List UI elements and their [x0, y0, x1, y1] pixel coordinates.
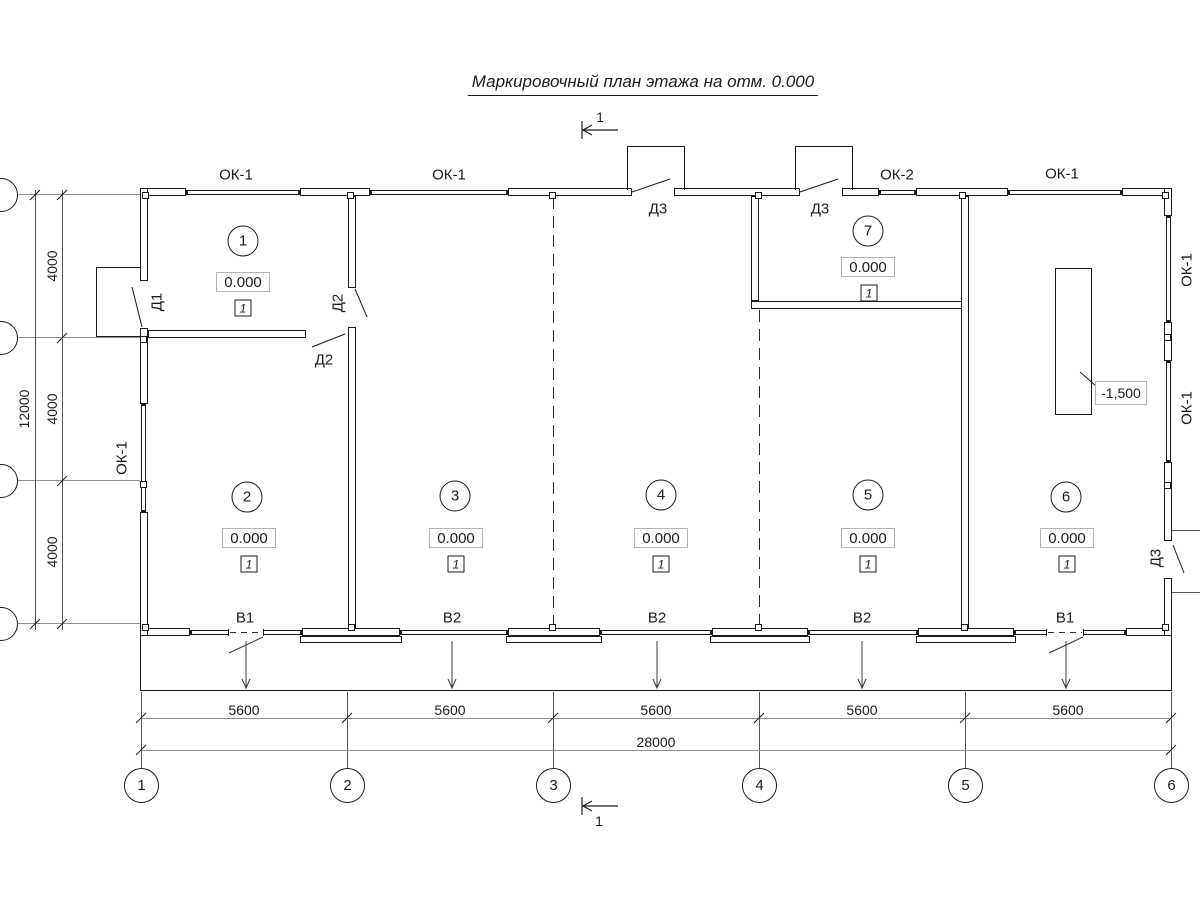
door-label-d3: Д3: [649, 201, 668, 218]
door-leaf-d3-porch2: [800, 179, 838, 192]
col-axis-number: 1: [137, 777, 145, 794]
room-4-number: 4: [646, 480, 677, 511]
door-leaf-lines: [132, 179, 1184, 573]
window-label-ok1: ОК-1: [432, 167, 466, 184]
door-label-d3: Д3: [1148, 549, 1165, 568]
room-6-number: 6: [1051, 482, 1082, 513]
vent-label-v1: В1: [236, 610, 254, 627]
window-label-ok1: ОК-1: [1179, 391, 1196, 425]
room-7-number: 7: [853, 216, 884, 247]
col-axis-bubble-4: 4: [742, 768, 777, 803]
room-5-finish: 1: [860, 556, 877, 573]
door-label-d2: Д2: [315, 352, 334, 369]
section-marks: [582, 121, 618, 815]
window-label-ok2: ОК-2: [880, 167, 914, 184]
floor-plan-drawing: Маркировочный план этажа на отм. 0.000 4…: [0, 0, 1200, 900]
pit-elevation: -1,500: [1095, 381, 1147, 405]
dim-bay-1: 5600: [228, 702, 259, 718]
vent-label-v2: В2: [443, 610, 461, 627]
col-axis-bubble-3: 3: [536, 768, 571, 803]
door-label-d2: Д2: [330, 294, 347, 313]
room-1-elevation: 0.000: [216, 272, 270, 292]
pit-elevation-value: -1,500: [1101, 385, 1141, 401]
dim-bay-4: 5600: [846, 702, 877, 718]
room-4-finish: 1: [653, 556, 670, 573]
dim-total-width: 28000: [637, 734, 676, 750]
dim-row-1: 4000: [44, 250, 60, 281]
dim-bay-3: 5600: [640, 702, 671, 718]
room-3-finish: 1: [448, 556, 465, 573]
pit-leader-line: [1080, 372, 1096, 386]
col-axis-bubble-6: 6: [1154, 768, 1189, 803]
room-2-number: 2: [232, 482, 263, 513]
door-leaf-d2-vertical: [355, 289, 367, 317]
vent-arrows: [229, 637, 1083, 688]
room-2-elevation: 0.000: [222, 528, 276, 548]
room-4-elevation: 0.000: [634, 528, 688, 548]
door-label-d1: Д1: [149, 293, 166, 312]
dim-row-3: 4000: [44, 536, 60, 567]
room-1-finish: 1: [235, 300, 252, 317]
section-mark-top-label: 1: [596, 109, 604, 125]
door-label-d3: Д3: [811, 201, 830, 218]
room-2-finish: 1: [241, 556, 258, 573]
door-leaf-d3-porch1: [632, 179, 670, 192]
room-7-elevation: 0.000: [841, 257, 895, 277]
room-6-finish: 1: [1059, 556, 1076, 573]
room-1-number: 1: [228, 226, 259, 257]
door-leaf-d1: [132, 287, 142, 327]
drawing-title: Маркировочный план этажа на отм. 0.000: [468, 72, 818, 96]
room-3-elevation: 0.000: [429, 528, 483, 548]
window-label-ok1: ОК-1: [1045, 166, 1079, 183]
room-5-elevation: 0.000: [841, 528, 895, 548]
dim-bay-2: 5600: [434, 702, 465, 718]
section-mark-bottom-label: 1: [595, 813, 603, 829]
door-leaf-d2-horizontal: [312, 334, 345, 347]
door-leaf-d3-right: [1173, 545, 1184, 573]
linework-overlay: [0, 0, 1200, 900]
window-label-ok1: ОК-1: [1179, 253, 1196, 287]
room-7-finish: 1: [861, 285, 878, 302]
dim-rows-total: 12000: [16, 390, 32, 429]
col-axis-bubble-5: 5: [948, 768, 983, 803]
col-axis-number: 3: [549, 777, 557, 794]
vent-label-v1: В1: [1056, 610, 1074, 627]
col-axis-number: 5: [961, 777, 969, 794]
col-axis-number: 6: [1167, 777, 1175, 794]
vent-label-v2: В2: [648, 610, 666, 627]
room-6-elevation: 0.000: [1040, 528, 1094, 548]
col-axis-bubble-1: 1: [124, 768, 159, 803]
window-label-ok1: ОК-1: [114, 441, 131, 475]
dim-row-2: 4000: [44, 393, 60, 424]
col-axis-bubble-2: 2: [330, 768, 365, 803]
window-label-ok1: ОК-1: [219, 167, 253, 184]
col-axis-number: 4: [755, 777, 763, 794]
vent-label-v2: В2: [853, 610, 871, 627]
room-3-number: 3: [440, 481, 471, 512]
room-5-number: 5: [853, 480, 884, 511]
col-axis-number: 2: [343, 777, 351, 794]
dim-bay-5: 5600: [1052, 702, 1083, 718]
